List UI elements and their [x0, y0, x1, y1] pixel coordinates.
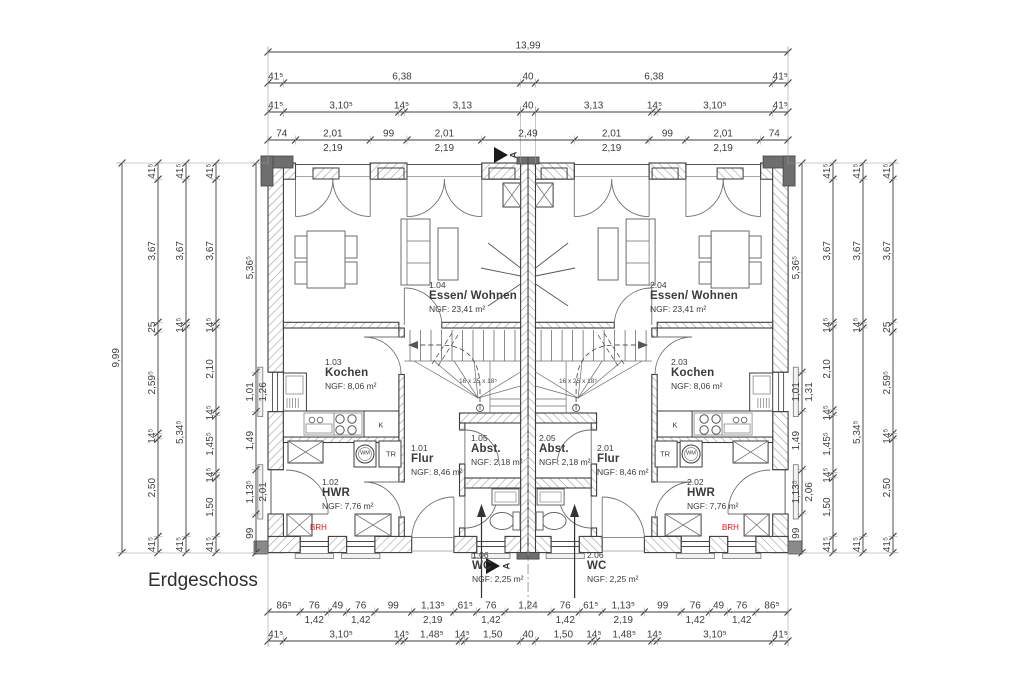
dimension-label: 1,48⁵ [420, 630, 444, 641]
dimension-label: 76 [560, 601, 572, 612]
dimension-label: 40 [522, 101, 534, 112]
dimension-label: 14⁵ [205, 318, 216, 333]
room-number: 1.02 [322, 477, 373, 487]
room-number: 2.05 [539, 433, 590, 443]
dimension-label: 41⁵ [268, 101, 283, 112]
dimension-label: 5,36⁵ [791, 256, 802, 280]
dimension-label: 3,67 [852, 241, 863, 261]
dimension-label: 99 [388, 601, 400, 612]
dimension-label: 14⁵ [822, 405, 833, 420]
dimension-label: 41⁵ [773, 101, 788, 112]
dimension-label: 9,99 [111, 348, 122, 368]
dimension-label: 14⁵ [586, 630, 601, 641]
dimension-label: 41⁵ [773, 72, 788, 83]
dimension-label: 14⁵ [852, 318, 863, 333]
dryer-label-2: TR [660, 450, 670, 459]
dimension-label: 1,50 [483, 630, 503, 641]
stair-spec-2: 16 x 25 x 18⁵ [559, 378, 597, 386]
dimension-label: 41⁵ [205, 537, 216, 552]
dimension-label: 41⁵ [268, 630, 283, 641]
dimension-label: 3,10⁵ [703, 101, 727, 112]
room-label-flur-1: 1.01 Flur NGF: 8,46 m² [411, 443, 462, 477]
room-label-wc-2: 2.06 WC NGF: 2,25 m² [587, 550, 638, 584]
room-number: 1.05 [471, 433, 522, 443]
dimension-label: 25 [147, 321, 158, 333]
room-area: NGF: 2,18 m² [539, 457, 590, 467]
unit-1-graphics [254, 156, 528, 598]
room-name: Kochen [325, 367, 376, 381]
dimension-label: 2,01 [602, 129, 622, 140]
stair-spec-1: 16 x 25 x 18⁵ [459, 378, 497, 386]
dimension-label: 99 [245, 527, 256, 539]
dimension-label: 61⁵ [583, 601, 598, 612]
room-area: NGF: 2,25 m² [587, 574, 638, 584]
room-area: NGF: 7,76 m² [322, 501, 373, 511]
room-label-kochen-1: 1.03 Kochen NGF: 8,06 m² [325, 357, 376, 391]
dimension-label: 3,67 [882, 241, 893, 261]
dimension-label: 1,13⁵ [245, 480, 256, 504]
room-area: NGF: 23,41 m² [429, 304, 517, 314]
dimension-label: 1,13⁵ [421, 601, 445, 612]
dimension-label: 3,13 [584, 101, 604, 112]
floorplan-canvas: 13,9941⁵6,38406,3841⁵41⁵3,10⁵14⁵3,13403,… [0, 0, 1024, 683]
room-name: HWR [322, 487, 373, 501]
dimension-label: 2,50 [882, 478, 893, 498]
dimension-label: 41⁵ [175, 537, 186, 552]
dimension-label: 1,50 [554, 630, 574, 641]
dimension-label: 14⁵ [147, 428, 158, 443]
dimension-label: 41⁵ [147, 537, 158, 552]
dimension-label: 14⁵ [205, 405, 216, 420]
dimension-label: 41⁵ [175, 163, 186, 178]
dimension-label: 2,10 [205, 359, 216, 379]
room-name: WC [472, 560, 523, 574]
room-name: Abst. [471, 443, 522, 457]
dimension-label: 41⁵ [882, 537, 893, 552]
section-marker-letter-bottom: A [501, 563, 512, 570]
dimension-label: 3,67 [822, 241, 833, 261]
dimension-label: 40 [522, 630, 534, 641]
dimension-label: 1,24 [518, 601, 538, 612]
room-area: NGF: 7,76 m² [687, 501, 738, 511]
dimension-label: 1,01 [791, 382, 802, 402]
dimension-label: 1,50 [822, 497, 833, 517]
dimension-label: 1,13⁵ [791, 480, 802, 504]
dimension-label: 1,13⁵ [611, 601, 635, 612]
furniture [598, 219, 761, 288]
room-number: 2.03 [671, 357, 722, 367]
dimension-label: 14⁵ [205, 467, 216, 482]
dimension-label: 3,10⁵ [329, 630, 353, 641]
dimension-label: 14⁵ [175, 318, 186, 333]
section-marker-top [494, 147, 508, 163]
room-name: Flur [411, 453, 462, 467]
dimension-label: 25 [882, 321, 893, 333]
dimension-label: 1,45⁵ [205, 432, 216, 456]
dimension-label: 14⁵ [454, 630, 469, 641]
dimension-label: 86⁵ [764, 601, 779, 612]
dimension-label: 5,34⁵ [175, 420, 186, 444]
dimension-label: 6,38 [644, 72, 664, 83]
room-number: 1.04 [429, 280, 517, 290]
dimension-label: 1,50 [205, 497, 216, 517]
dimension-label: 3,67 [147, 241, 158, 261]
dimension-label: 40 [522, 72, 534, 83]
dimension-label: 74 [769, 129, 781, 140]
room-label-wohnen-1: 1.04 Essen/ Wohnen NGF: 23,41 m² [429, 280, 517, 314]
dimension-label: 1,26 [258, 382, 269, 402]
room-area: NGF: 8,46 m² [411, 467, 462, 477]
room-name: Abst. [539, 443, 590, 457]
room-area: NGF: 23,41 m² [650, 304, 738, 314]
room-number: 1.06 [472, 550, 523, 560]
dimension-label: 99 [657, 601, 669, 612]
dimension-label: 1,42 [305, 615, 325, 626]
dimension-label: 99 [662, 129, 674, 140]
room-name: Kochen [671, 367, 722, 381]
dimension-label: 3,13 [453, 101, 473, 112]
dimension-label: 14⁵ [394, 101, 409, 112]
dimension-label: 2,19 [614, 615, 634, 626]
dryer-label-1: TR [386, 450, 396, 459]
dimension-label: 13,99 [515, 41, 540, 52]
dimension-label: 2,10 [822, 359, 833, 379]
room-area: NGF: 8,46 m² [597, 467, 648, 477]
dimension-label: 1,45⁵ [822, 432, 833, 456]
dimension-label: 76 [355, 601, 367, 612]
dimension-label: 2,06 [804, 482, 815, 502]
washer-label-2: WM [686, 451, 696, 458]
floor-title: Erdgeschoss [148, 570, 258, 593]
dimension-label: 41⁵ [822, 537, 833, 552]
dimension-label: 1,42 [732, 615, 752, 626]
dimension-label: 3,67 [175, 241, 186, 261]
dimension-label: 14⁵ [647, 101, 662, 112]
dimension-label: 2,49 [518, 129, 538, 140]
room-number: 2.01 [597, 443, 648, 453]
room-label-flur-2: 2.01 Flur NGF: 8,46 m² [597, 443, 648, 477]
dimension-label: 2,01 [258, 482, 269, 502]
room-name: Essen/ Wohnen [650, 290, 738, 304]
dimension-label: 76 [309, 601, 321, 612]
room-label-abst-1: 1.05 Abst. NGF: 2,18 m² [471, 433, 522, 467]
fridge-label-1: K [378, 421, 383, 430]
dimension-label: 14⁵ [394, 630, 409, 641]
dimension-label: 76 [736, 601, 748, 612]
dimension-label: 3,67 [205, 241, 216, 261]
room-label-hwr-1: 1.02 HWR NGF: 7,76 m² [322, 477, 373, 511]
dimension-label: 14⁵ [822, 318, 833, 333]
room-name: WC [587, 560, 638, 574]
dimension-label: 6,38 [392, 72, 412, 83]
dimension-label: 2,59⁵ [882, 371, 893, 395]
dimension-label: 41⁵ [822, 163, 833, 178]
dimension-label: 2,19 [423, 615, 443, 626]
dimension-label: 1,42 [481, 615, 501, 626]
dimension-label: 74 [276, 129, 288, 140]
dimension-label: 41⁵ [147, 163, 158, 178]
dimension-label: 1,42 [555, 615, 575, 626]
brh-label-2: BRH [722, 523, 739, 533]
dimension-label: 14⁵ [647, 630, 662, 641]
dimension-label: 5,36⁵ [245, 256, 256, 280]
dimension-label: 41⁵ [852, 163, 863, 178]
section-marker-letter-top: A [508, 152, 519, 159]
room-number: 2.04 [650, 280, 738, 290]
dimension-label: 2,50 [147, 478, 158, 498]
dimension-label: 1,01 [245, 382, 256, 402]
dimension-label: 76 [485, 601, 497, 612]
dimension-label: 2,01 [323, 129, 343, 140]
room-label-abst-2: 2.05 Abst. NGF: 2,18 m² [539, 433, 590, 467]
washer-label-1: WM [360, 451, 370, 458]
room-name: Essen/ Wohnen [429, 290, 517, 304]
dimension-label: 76 [690, 601, 702, 612]
room-number: 1.01 [411, 443, 462, 453]
dimension-label: 14⁵ [882, 428, 893, 443]
furniture [295, 219, 458, 288]
dimension-label: 41⁵ [882, 163, 893, 178]
room-number: 1.03 [325, 357, 376, 367]
dimension-label: 1,42 [686, 615, 706, 626]
dimension-label: 61⁵ [458, 601, 473, 612]
room-label-wohnen-2: 2.04 Essen/ Wohnen NGF: 23,41 m² [650, 280, 738, 314]
dimension-label: 14⁵ [822, 467, 833, 482]
room-name: Flur [597, 453, 648, 467]
dimension-label: 41⁵ [268, 72, 283, 83]
dimension-label: 2,59⁵ [147, 371, 158, 395]
dimension-label: 1,49 [791, 431, 802, 451]
room-name: HWR [687, 487, 738, 501]
dimension-label: 41⁵ [852, 537, 863, 552]
dimension-label: 2,19 [323, 143, 343, 154]
dimension-label: 2,19 [602, 143, 622, 154]
dimension-label: 99 [383, 129, 395, 140]
dimension-label: 2,19 [435, 143, 455, 154]
room-number: 2.02 [687, 477, 738, 487]
dimension-label: 1,49 [245, 431, 256, 451]
room-area: NGF: 8,06 m² [671, 381, 722, 391]
dimension-label: 5,34⁵ [852, 420, 863, 444]
dimension-label: 2,01 [713, 129, 733, 140]
room-area: NGF: 2,25 m² [472, 574, 523, 584]
dimension-label: 41⁵ [773, 630, 788, 641]
room-area: NGF: 2,18 m² [471, 457, 522, 467]
staircase [404, 330, 520, 413]
dimension-label: 2,19 [713, 143, 733, 154]
room-label-wc-1: 1.06 WC NGF: 2,25 m² [472, 550, 523, 584]
dimension-label: 1,31 [804, 382, 815, 402]
room-label-hwr-2: 2.02 HWR NGF: 7,76 m² [687, 477, 738, 511]
dimension-label: 49 [332, 601, 344, 612]
dimension-label: 3,10⁵ [329, 101, 353, 112]
room-label-kochen-2: 2.03 Kochen NGF: 8,06 m² [671, 357, 722, 391]
dimension-label: 49 [713, 601, 725, 612]
room-area: NGF: 8,06 m² [325, 381, 376, 391]
dimension-label: 41⁵ [205, 163, 216, 178]
unit-2-graphics [528, 156, 802, 598]
dimension-label: 86⁵ [276, 601, 291, 612]
dimension-label: 3,10⁵ [703, 630, 727, 641]
dimension-label: 1,42 [351, 615, 371, 626]
fridge-label-2: K [672, 421, 677, 430]
staircase [536, 330, 652, 413]
brh-label-1: BRH [310, 523, 327, 533]
room-number: 2.06 [587, 550, 638, 560]
dimension-label: 2,01 [435, 129, 455, 140]
dimension-label: 1,48⁵ [612, 630, 636, 641]
dimension-label: 99 [791, 527, 802, 539]
